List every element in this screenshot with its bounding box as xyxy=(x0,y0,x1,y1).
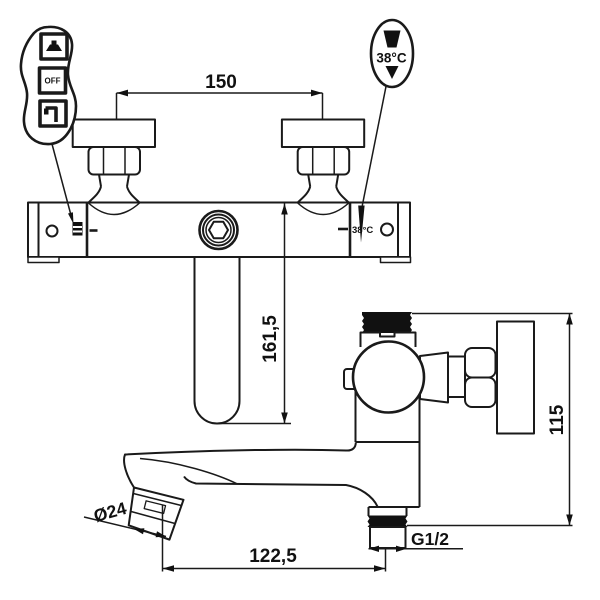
riser-thread xyxy=(362,312,412,333)
left-wall-mount xyxy=(73,120,155,215)
bottom-outlet xyxy=(368,507,408,548)
arrow-down-icon xyxy=(281,413,288,424)
diverter-button xyxy=(73,222,83,236)
arrow-right-icon xyxy=(374,565,386,571)
mode-callout: OFF xyxy=(21,27,76,224)
diagram-canvas: 150 xyxy=(0,0,600,600)
dim-122-5-label: 122,5 xyxy=(249,546,297,567)
arrow-up-icon xyxy=(566,314,573,325)
dim-115-label: 115 xyxy=(547,404,568,435)
mixer-technical-drawing: 150 xyxy=(0,0,600,600)
arrow-left-icon xyxy=(117,90,129,97)
dimension-115: 115 xyxy=(407,314,573,526)
spout-front xyxy=(195,257,240,424)
outlet-thread xyxy=(368,516,408,528)
aerator xyxy=(124,488,184,541)
dim-d24-label: Ø24 xyxy=(91,498,128,526)
wall-flange xyxy=(497,322,534,434)
right-wall-mount xyxy=(282,120,364,215)
dim-150-label: 150 xyxy=(205,72,237,93)
arrow-left-icon xyxy=(134,528,144,534)
body-temp-label: 38°C xyxy=(352,225,373,236)
temp-callout-label: 38°C xyxy=(376,51,406,66)
front-view: 150 xyxy=(21,20,413,424)
dimension-150: 150 xyxy=(117,72,323,120)
control-knob xyxy=(353,342,424,413)
arrow-down-icon xyxy=(566,515,573,526)
connector-nut-bottom xyxy=(465,378,496,408)
arrow-left-icon xyxy=(163,565,175,571)
dimension-122-5: 122,5 xyxy=(163,505,386,572)
wall-connector xyxy=(420,322,534,434)
side-view: 115 G1/2 122,5 Ø24 xyxy=(84,312,573,572)
arrow-right-icon xyxy=(311,90,323,97)
off-icon: OFF xyxy=(45,77,61,86)
dim-161-5-label: 161,5 xyxy=(260,315,281,363)
dim-g12-label: G1/2 xyxy=(411,529,449,549)
connector-neck xyxy=(448,357,465,398)
connector-nut-top xyxy=(465,348,496,378)
